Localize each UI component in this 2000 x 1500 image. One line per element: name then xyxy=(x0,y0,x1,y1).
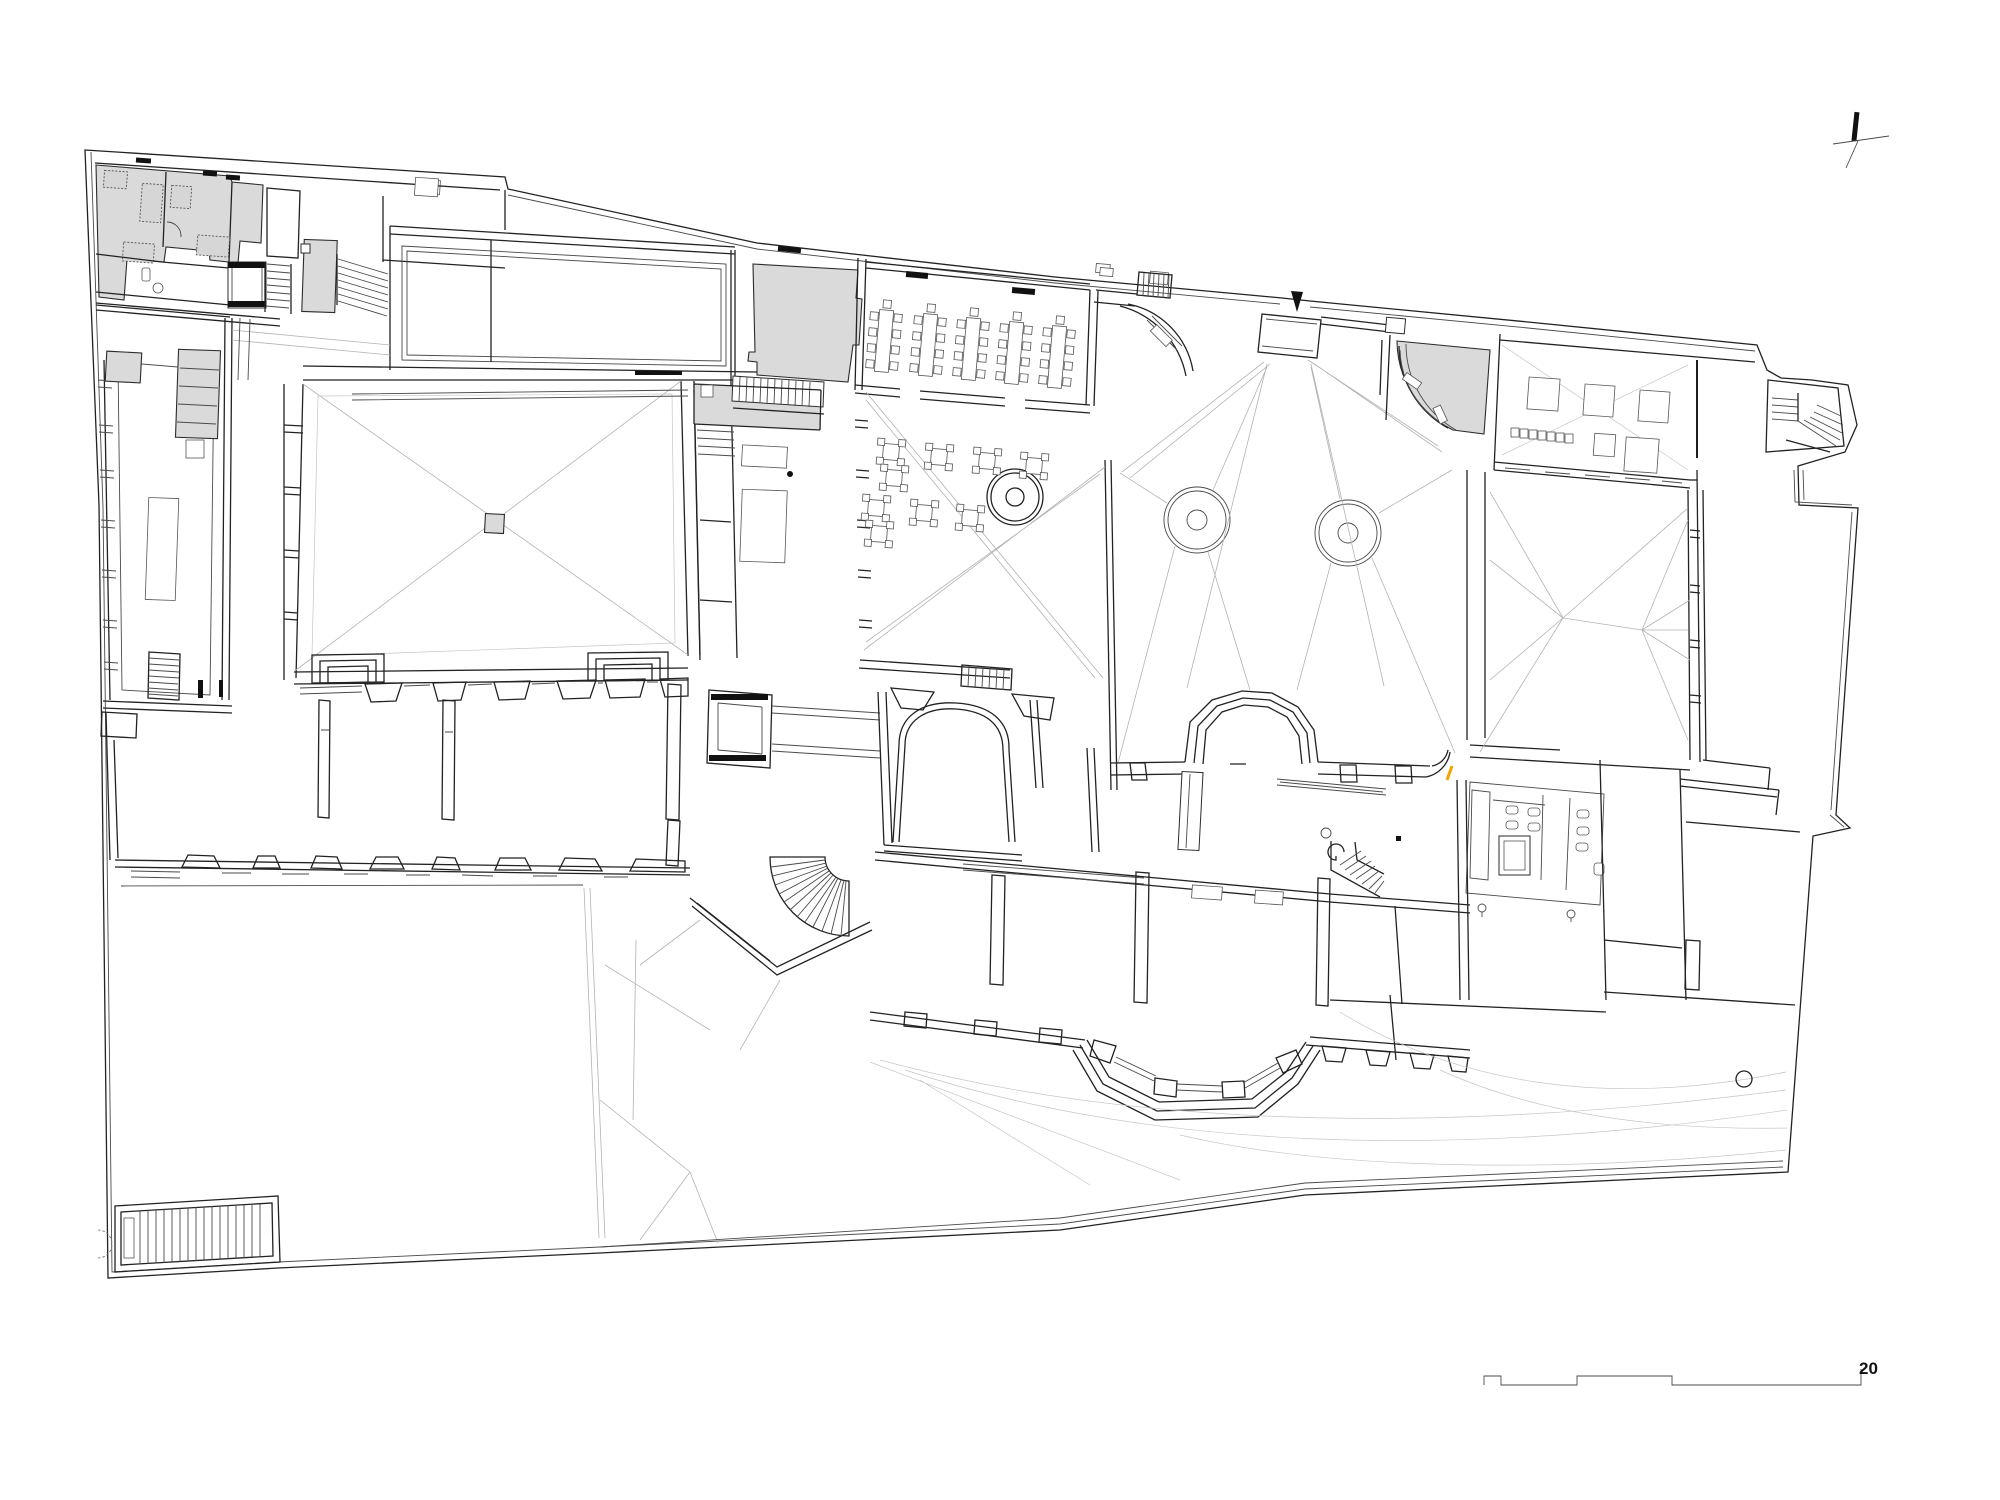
svg-text:20: 20 xyxy=(1859,1359,1878,1378)
